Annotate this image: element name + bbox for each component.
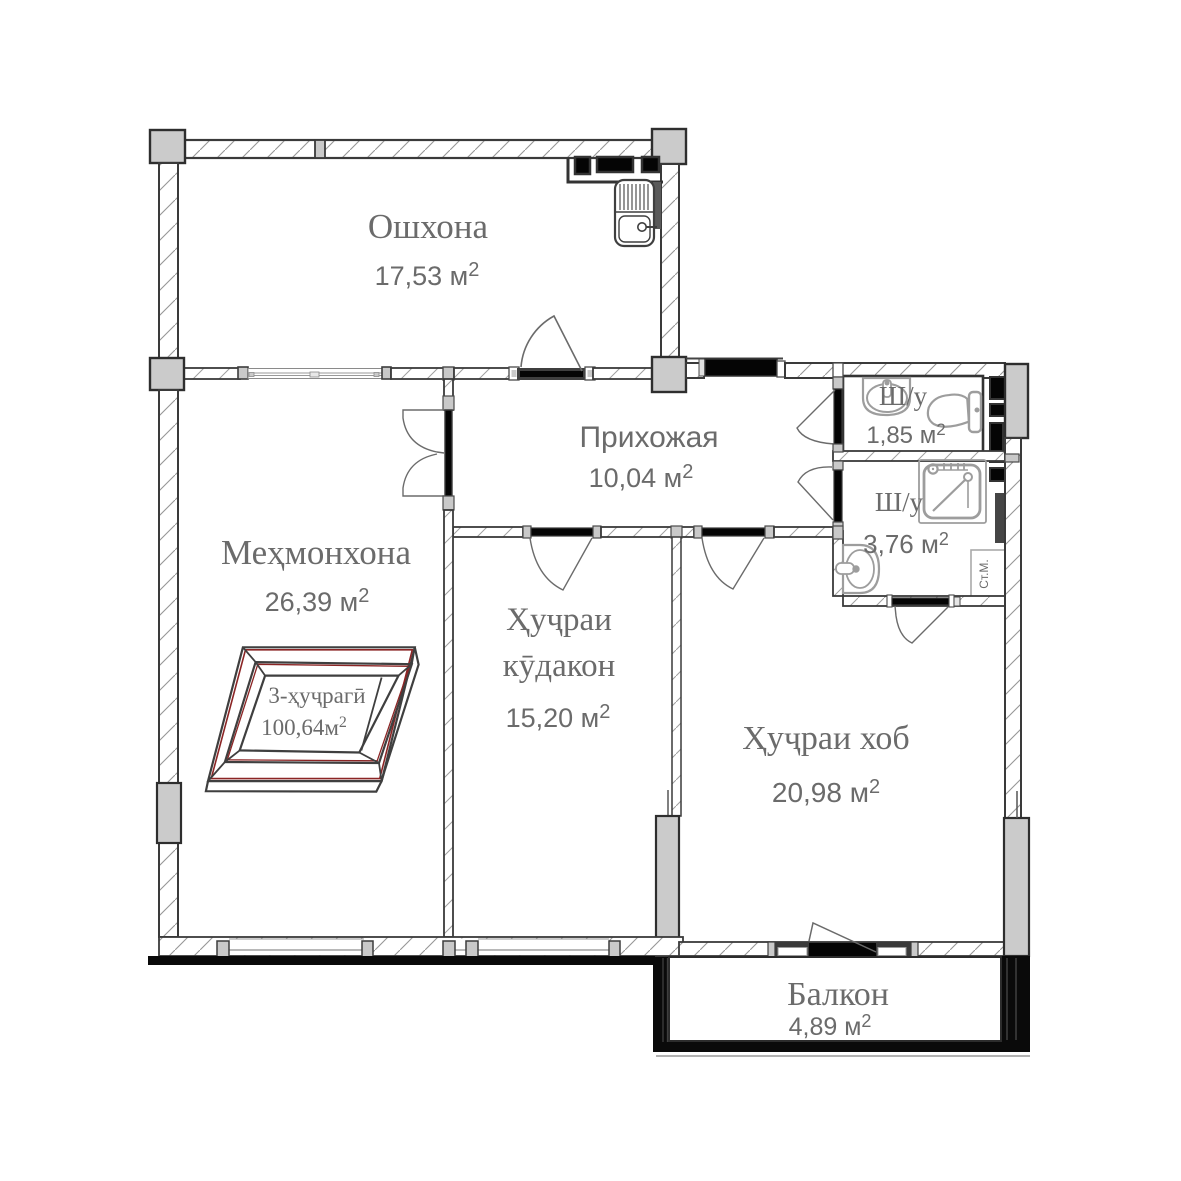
svg-text:Ш/у: Ш/у [875,487,924,517]
svg-text:кӯдакон: кӯдакон [503,648,616,684]
svg-text:26,39 м2: 26,39 м2 [265,585,370,617]
svg-text:Ш/у: Ш/у [879,381,928,411]
svg-text:Балкон: Балкон [787,976,889,1013]
svg-text:20,98 м2: 20,98 м2 [772,776,880,808]
svg-text:10,04 м2: 10,04 м2 [589,461,694,493]
svg-text:Меҳмонхона: Меҳмонхона [221,533,411,572]
svg-text:Ошхона: Ошхона [368,207,489,246]
svg-text:Ст.М.: Ст.М. [977,559,991,589]
svg-text:Ҳуҷраи хоб: Ҳуҷраи хоб [742,720,909,757]
svg-text:Прихожая: Прихожая [579,421,718,454]
svg-text:3-ҳуҷрагӣ: 3-ҳуҷрагӣ [268,683,365,708]
svg-text:1,85 м2: 1,85 м2 [866,420,945,449]
svg-text:3,76 м2: 3,76 м2 [863,529,949,559]
svg-text:15,20 м2: 15,20 м2 [506,701,611,733]
svg-text:4,89 м2: 4,89 м2 [789,1011,872,1041]
svg-text:100,64м2: 100,64м2 [261,714,347,740]
svg-text:17,53 м2: 17,53 м2 [375,259,480,291]
svg-text:Ҳуҷраи: Ҳуҷраи [506,602,612,638]
